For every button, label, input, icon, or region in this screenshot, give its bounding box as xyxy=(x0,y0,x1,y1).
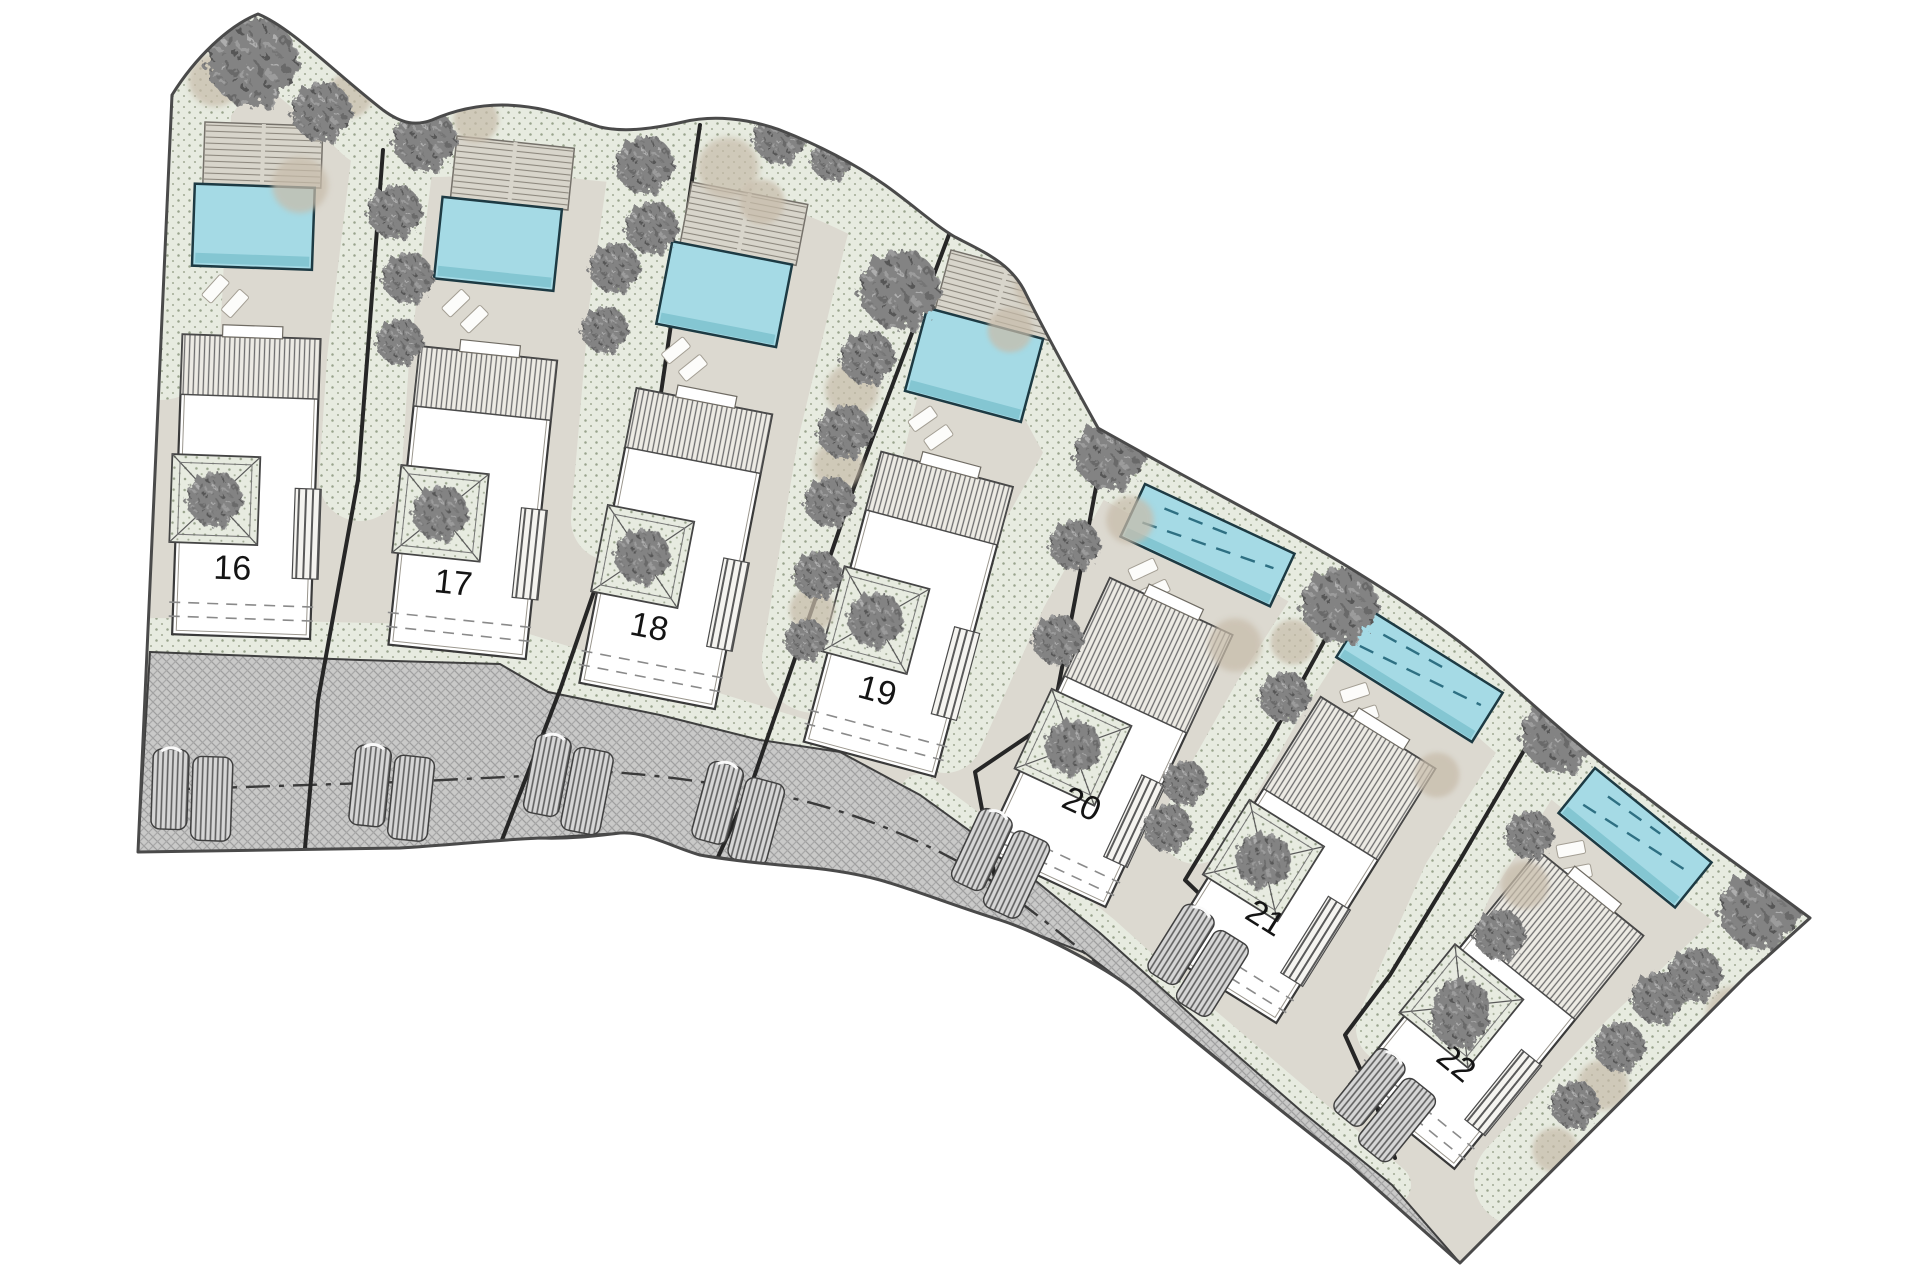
site-plan-page: 16 xyxy=(0,0,1920,1280)
shrub-icon xyxy=(988,308,1033,353)
tree-icon xyxy=(794,551,842,599)
tree-icon xyxy=(383,253,434,304)
tree-icon xyxy=(1144,804,1192,852)
tree-icon xyxy=(785,619,827,661)
shrub-icon xyxy=(740,180,785,225)
tree-icon xyxy=(1506,811,1554,859)
tree-icon xyxy=(1033,615,1083,665)
tree-icon xyxy=(377,319,424,366)
shrub-icon xyxy=(1015,257,1071,313)
tree-icon xyxy=(1595,1022,1645,1072)
tree-icon xyxy=(818,405,872,459)
planter xyxy=(169,454,260,545)
tree-icon xyxy=(1075,420,1145,490)
roof-terrace xyxy=(180,334,320,399)
tree-icon xyxy=(1632,972,1684,1024)
tree-icon xyxy=(368,185,422,239)
shrub-icon xyxy=(1415,753,1460,798)
tree-icon xyxy=(841,331,895,385)
tree-icon xyxy=(805,477,855,527)
tree-icon xyxy=(1260,672,1310,722)
shrub-icon xyxy=(1208,618,1261,671)
shrub-icon xyxy=(272,157,328,213)
tree-icon xyxy=(292,82,352,142)
pergola-strip xyxy=(292,488,321,579)
tree-icon xyxy=(616,136,674,194)
planter xyxy=(591,505,694,608)
lot-16-label: 16 xyxy=(213,549,252,588)
lot-18-label: 18 xyxy=(627,605,671,650)
tree-icon xyxy=(590,243,640,293)
tree-icon xyxy=(626,202,679,255)
tree-icon xyxy=(1163,761,1207,805)
site-plan-canvas: 16 xyxy=(0,0,1920,1280)
shrub-icon xyxy=(1501,861,1549,909)
tree-icon xyxy=(1475,910,1525,960)
villa: 16 xyxy=(166,323,327,639)
tree-icon xyxy=(1050,520,1100,570)
planter xyxy=(392,465,489,562)
tree-icon xyxy=(394,109,457,172)
tree-icon xyxy=(582,307,629,354)
lot-17-label: 17 xyxy=(432,562,474,604)
tree-icon xyxy=(988,195,1042,249)
shrub-icon xyxy=(1706,986,1759,1039)
tree-icon xyxy=(1551,1081,1599,1129)
tree-icon xyxy=(1432,992,1489,1049)
shrub-icon xyxy=(1106,496,1154,544)
tree-icon xyxy=(1522,697,1598,773)
tree-icon xyxy=(860,250,940,330)
